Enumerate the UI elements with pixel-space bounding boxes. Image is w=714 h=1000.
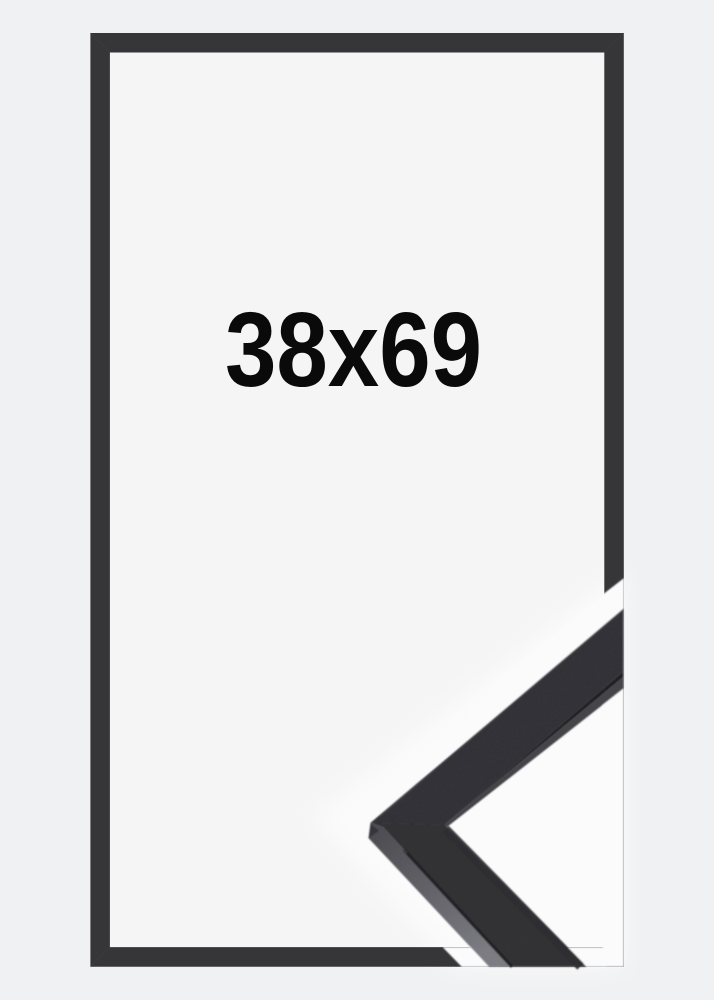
svg-text:38x69: 38x69 [225, 291, 482, 409]
